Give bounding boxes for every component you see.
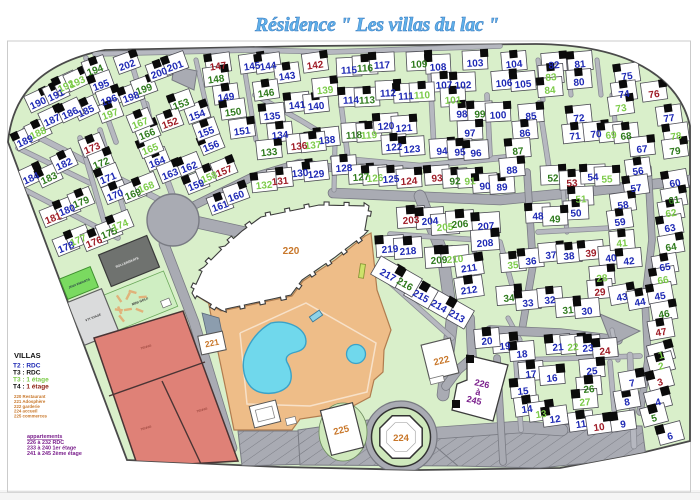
svg-text:32: 32	[544, 295, 556, 307]
svg-text:Résidence " Les villas du lac: Résidence " Les villas du lac "	[254, 14, 499, 36]
svg-text:120: 120	[377, 121, 395, 133]
svg-text:104: 104	[505, 59, 523, 71]
svg-text:119: 119	[361, 130, 378, 142]
svg-text:96: 96	[470, 148, 482, 160]
svg-text:77: 77	[663, 113, 676, 126]
svg-text:109: 109	[410, 59, 428, 71]
svg-text:20: 20	[481, 336, 493, 348]
svg-text:41: 41	[616, 238, 628, 250]
svg-text:59: 59	[614, 217, 627, 230]
svg-text:27: 27	[579, 397, 591, 409]
svg-text:54: 54	[587, 172, 599, 184]
svg-text:58: 58	[617, 200, 630, 213]
svg-text:124: 124	[400, 176, 418, 188]
svg-text:137: 137	[304, 140, 322, 153]
svg-text:23: 23	[582, 343, 594, 355]
svg-text:121: 121	[395, 123, 413, 135]
svg-text:97: 97	[464, 128, 476, 140]
svg-text:139: 139	[316, 85, 334, 98]
svg-text:100: 100	[489, 110, 507, 122]
svg-text:22: 22	[567, 342, 579, 354]
svg-text:103: 103	[466, 58, 484, 70]
svg-text:116: 116	[357, 63, 374, 75]
svg-text:40: 40	[605, 253, 617, 265]
svg-text:28: 28	[596, 273, 608, 285]
svg-text:88: 88	[506, 165, 518, 177]
svg-text:90: 90	[479, 181, 491, 193]
svg-text:21: 21	[552, 342, 564, 354]
svg-text:17: 17	[525, 369, 537, 381]
svg-text:71: 71	[569, 131, 582, 143]
svg-text:67: 67	[636, 144, 649, 156]
svg-text:123: 123	[403, 144, 421, 156]
svg-text:15: 15	[517, 386, 529, 398]
svg-text:84: 84	[544, 85, 556, 97]
svg-text:89: 89	[496, 182, 508, 194]
svg-text:112: 112	[380, 88, 397, 100]
svg-text:101: 101	[444, 95, 462, 107]
svg-text:135: 135	[263, 111, 281, 124]
svg-text:86: 86	[519, 128, 531, 140]
svg-text:241 à 245 2ème étage: 241 à 245 2ème étage	[27, 451, 82, 457]
svg-text:111: 111	[398, 91, 415, 103]
svg-text:42: 42	[623, 256, 635, 268]
svg-text:39: 39	[585, 248, 597, 260]
svg-text:18: 18	[516, 349, 528, 361]
svg-text:207: 207	[477, 221, 495, 233]
svg-text:81: 81	[574, 59, 586, 71]
svg-text:38: 38	[563, 251, 575, 263]
svg-text:73: 73	[615, 103, 628, 116]
svg-text:79: 79	[669, 146, 682, 159]
svg-text:108: 108	[429, 62, 447, 74]
svg-text:224: 224	[393, 433, 410, 444]
svg-text:T4 : 1 étage: T4 : 1 étage	[13, 384, 49, 391]
svg-text:VILLAS: VILLAS	[14, 351, 41, 360]
svg-text:48: 48	[532, 211, 544, 223]
svg-text:13: 13	[535, 409, 548, 422]
svg-text:125: 125	[382, 174, 400, 186]
svg-text:55: 55	[601, 174, 613, 186]
svg-text:78: 78	[670, 131, 683, 144]
svg-text:49: 49	[549, 214, 561, 226]
svg-text:36: 36	[525, 256, 537, 268]
svg-text:141: 141	[288, 100, 306, 113]
svg-text:102: 102	[454, 80, 472, 92]
svg-text:26: 26	[583, 384, 595, 396]
svg-text:133: 133	[260, 147, 278, 160]
svg-text:218: 218	[399, 246, 417, 258]
svg-text:106: 106	[495, 78, 513, 90]
svg-text:72: 72	[573, 113, 586, 125]
svg-text:132: 132	[255, 180, 273, 193]
svg-text:51: 51	[575, 194, 587, 206]
svg-text:95: 95	[454, 147, 466, 159]
svg-text:94: 94	[436, 146, 448, 158]
svg-text:98: 98	[456, 109, 468, 121]
svg-text:113: 113	[359, 95, 376, 107]
svg-text:87: 87	[512, 146, 524, 158]
svg-text:122: 122	[385, 142, 403, 154]
svg-text:82: 82	[548, 60, 560, 72]
svg-text:12: 12	[549, 414, 562, 427]
svg-text:76: 76	[648, 89, 661, 102]
svg-text:85: 85	[525, 111, 537, 123]
svg-text:99: 99	[474, 109, 486, 121]
svg-text:11: 11	[575, 419, 587, 431]
svg-text:80: 80	[573, 77, 585, 89]
svg-text:129: 129	[307, 169, 325, 182]
svg-text:50: 50	[570, 208, 582, 220]
svg-text:34: 34	[503, 293, 515, 305]
svg-text:128: 128	[335, 163, 353, 175]
svg-text:220: 220	[283, 246, 300, 257]
svg-text:68: 68	[620, 131, 633, 143]
svg-text:37: 37	[545, 250, 557, 262]
svg-text:52: 52	[547, 173, 559, 185]
svg-text:10: 10	[593, 422, 606, 435]
svg-text:92: 92	[449, 176, 461, 188]
svg-text:203: 203	[402, 215, 420, 227]
svg-text:208: 208	[476, 238, 494, 250]
svg-text:70: 70	[590, 129, 603, 141]
svg-text:57: 57	[630, 183, 643, 196]
svg-text:29: 29	[594, 287, 606, 299]
svg-text:74: 74	[618, 89, 631, 102]
svg-text:16: 16	[546, 373, 558, 385]
svg-text:91: 91	[464, 176, 476, 188]
svg-text:53: 53	[566, 178, 578, 190]
svg-text:24: 24	[599, 346, 611, 358]
svg-text:T2 : RDC: T2 : RDC	[13, 363, 41, 370]
svg-text:14: 14	[521, 404, 534, 417]
svg-text:31: 31	[562, 305, 574, 317]
svg-text:56: 56	[632, 166, 645, 179]
svg-text:30: 30	[581, 306, 593, 318]
svg-text:33: 33	[522, 298, 534, 310]
svg-text:115: 115	[341, 65, 358, 77]
svg-text:110: 110	[414, 90, 431, 102]
svg-text:140: 140	[307, 101, 325, 114]
svg-text:117: 117	[374, 60, 391, 72]
svg-text:35: 35	[507, 260, 519, 272]
svg-text:105: 105	[514, 79, 532, 91]
svg-text:107: 107	[435, 80, 453, 92]
svg-text:131: 131	[271, 176, 289, 189]
svg-text:69: 69	[605, 130, 618, 142]
svg-text:114: 114	[343, 95, 360, 107]
svg-text:T3 : 1 étage: T3 : 1 étage	[13, 377, 49, 384]
svg-text:T3 : RDC: T3 : RDC	[13, 370, 41, 377]
svg-text:83: 83	[545, 72, 557, 84]
svg-text:219: 219	[381, 244, 399, 256]
svg-text:211: 211	[460, 262, 478, 275]
svg-text:75: 75	[621, 71, 634, 84]
svg-text:206: 206	[451, 219, 469, 231]
svg-text:134: 134	[271, 130, 289, 143]
svg-text:19: 19	[499, 341, 511, 353]
svg-text:225 commerces: 225 commerces	[14, 414, 48, 419]
svg-text:25: 25	[586, 366, 598, 378]
svg-text:93: 93	[431, 173, 443, 185]
